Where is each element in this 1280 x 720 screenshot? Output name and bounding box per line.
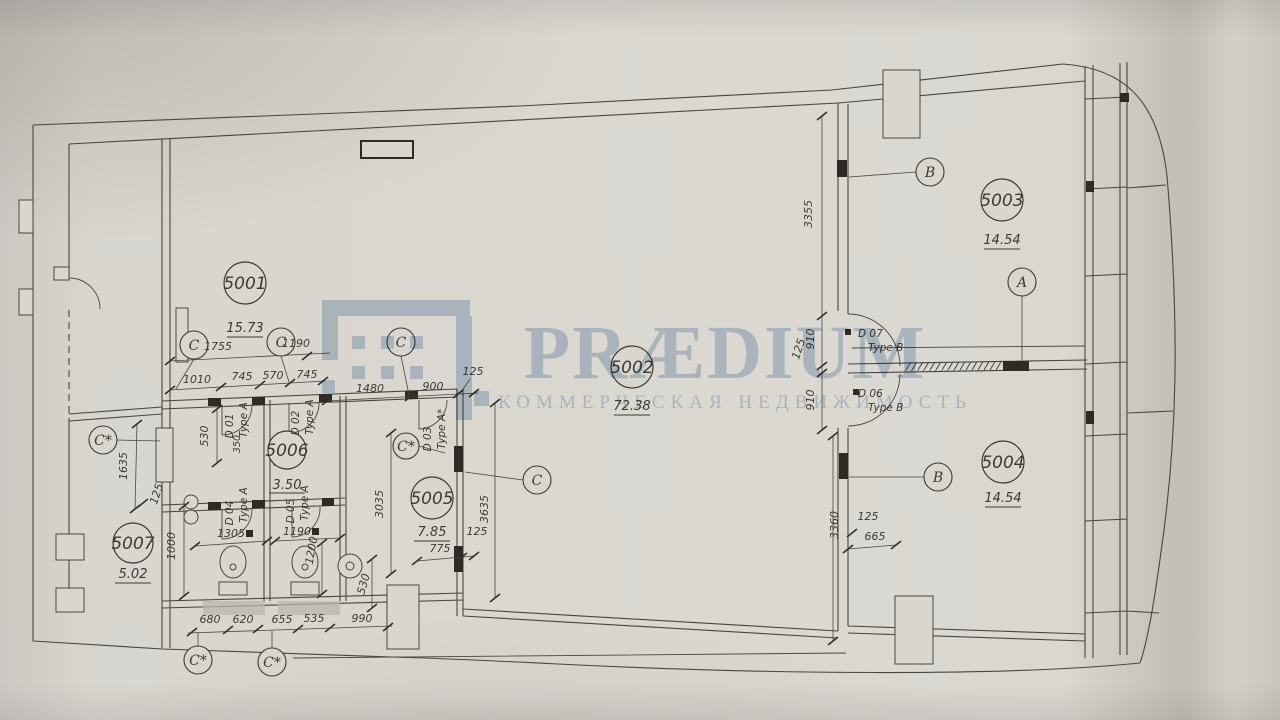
basin-icon <box>184 495 198 509</box>
door-type: Type A <box>304 399 316 434</box>
dim-label: 530 <box>198 426 211 447</box>
room-number: 5006 <box>265 441 308 461</box>
room-number: 5005 <box>410 489 453 509</box>
axis-label: C* <box>94 433 112 449</box>
axis-label: C* <box>263 655 281 671</box>
axis-label: C <box>532 473 543 489</box>
dim-label: 3035 <box>373 490 386 518</box>
dim-label: 535 <box>304 612 325 625</box>
dim-label: 1305 <box>217 527 245 540</box>
room-number: 5007 <box>111 534 154 554</box>
room-area: 5.02 <box>119 567 148 582</box>
axis-label: C <box>189 338 200 354</box>
door-type: Type A <box>238 402 250 437</box>
door-id: D 03 <box>422 427 434 452</box>
room-area: 7.85 <box>418 525 447 540</box>
room-number: 5001 <box>223 274 266 294</box>
axis-label: C <box>396 335 407 351</box>
plumbing-fixtures <box>184 441 362 595</box>
dim-label: 775 <box>430 542 451 555</box>
basin-icon <box>184 510 198 524</box>
axis-label: B <box>932 470 943 486</box>
room-area: 3.50 <box>273 478 302 493</box>
toilet-tank <box>219 582 247 595</box>
room-area: 15.73 <box>226 321 263 336</box>
watermark-tagline: КОММЕРЧЕСКАЯ НЕДВИЖИМОСТЬ <box>498 392 972 413</box>
door-id: D 02 <box>290 410 302 435</box>
door-id: D 05 <box>285 498 297 523</box>
dim-label: 900 <box>423 380 444 393</box>
round-sink-drain <box>346 562 354 570</box>
dim-label: 655 <box>272 613 293 626</box>
watermark-brand: PRÆDIUM <box>524 311 926 395</box>
dim-label: 3360 <box>828 511 841 539</box>
room-area: 14.54 <box>983 233 1020 248</box>
door-type: Type A <box>299 485 311 520</box>
door-type: Type A <box>238 487 250 522</box>
room-number: 5004 <box>981 453 1024 473</box>
axis-label: C* <box>397 439 415 455</box>
door-type: Type A* <box>436 409 448 450</box>
axis-label: C* <box>189 653 207 669</box>
dim-label: 620 <box>233 613 254 626</box>
watermark: PRÆDIUM КОММЕРЧЕСКАЯ НЕДВИЖИМОСТЬ <box>322 300 972 420</box>
room-area: 14.54 <box>984 491 1021 506</box>
dim-label: 570 <box>263 369 284 382</box>
room-number: 5003 <box>980 191 1023 211</box>
axis-label: B <box>924 165 935 181</box>
dim-label: 3635 <box>478 495 491 523</box>
dim-label: 1010 <box>183 373 211 386</box>
dim-label: 745 <box>297 368 318 381</box>
dim-label: 680 <box>200 613 221 626</box>
dim-label: 1755 <box>204 340 232 353</box>
door-id: D 01 <box>224 414 236 439</box>
dim-label: 1480 <box>356 382 384 395</box>
dim-label: 745 <box>232 370 253 383</box>
toilet-drain <box>302 564 308 570</box>
dim-label: 1000 <box>165 532 178 560</box>
dim-label: 1635 <box>117 452 130 480</box>
dim-label: 125 <box>467 525 488 538</box>
dim-label: 125 <box>147 482 166 506</box>
toilet-icon <box>220 546 246 578</box>
dim-label: 990 <box>352 612 373 625</box>
toilet-tank <box>291 582 319 595</box>
dim-label: 665 <box>865 530 886 543</box>
dim-label: 125 <box>858 510 879 523</box>
dim-label: 1190 <box>282 337 310 350</box>
toilet-drain <box>230 564 236 570</box>
dim-label: 3355 <box>802 200 815 228</box>
door-id: D 04 <box>224 501 236 526</box>
floor-plan-drawing: C C C C* C* C B A B C* C* 5001 15.73 500… <box>0 0 1280 720</box>
axis-label: A <box>1015 275 1027 291</box>
floor-plan-photo: C C C C* C* C B A B C* C* 5001 15.73 500… <box>0 0 1280 720</box>
